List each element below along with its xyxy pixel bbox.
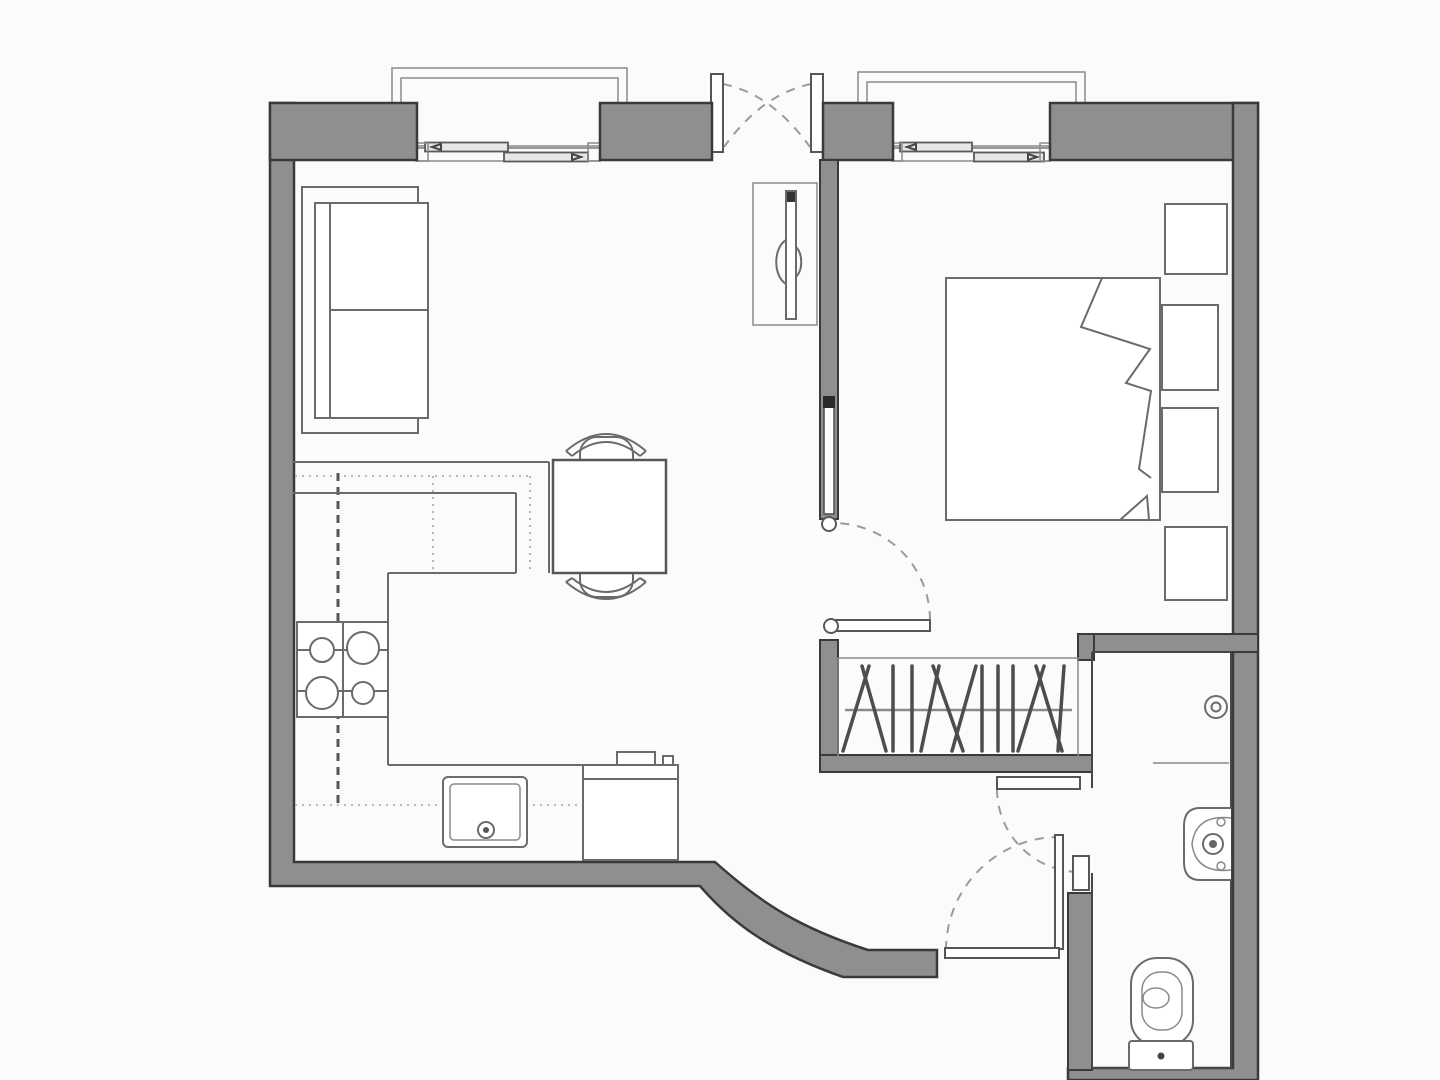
- washer-top-tab: [617, 752, 655, 766]
- entry-double-door: [711, 74, 823, 152]
- door-hinge-cap: [824, 619, 838, 633]
- wall-bathroom-left-lower: [1068, 893, 1092, 1070]
- toilet: [1129, 958, 1193, 1070]
- wall-top-left: [270, 103, 417, 160]
- lobby-door-swing-arc: [946, 837, 1059, 950]
- nightstand-top: [1165, 204, 1227, 274]
- kitchen: [293, 434, 678, 860]
- wall-top-mid: [600, 103, 712, 160]
- double-bed: [946, 278, 1160, 520]
- door-swing-arc: [724, 84, 811, 147]
- hanger-icon: [862, 666, 886, 751]
- toilet-bowl: [1131, 958, 1193, 1046]
- wall-bathroom-top: [1078, 634, 1258, 652]
- cabinet-mirror-bar: [786, 191, 796, 319]
- clothes-hangers: [843, 666, 1064, 751]
- living-room: [302, 187, 428, 433]
- shelf-upper: [1162, 305, 1218, 390]
- window-pane: [504, 153, 588, 162]
- bedroom-door-swing-arc: [833, 523, 930, 620]
- burner-icon: [306, 677, 338, 709]
- door-jamb: [1073, 856, 1089, 890]
- hanger-icon: [952, 666, 976, 751]
- kitchen-sink: [443, 777, 527, 847]
- wall-top-right: [1050, 103, 1258, 160]
- door-hinge-cap: [822, 517, 836, 531]
- nightstand-bottom: [1165, 527, 1227, 600]
- wash-basin: [1184, 808, 1231, 880]
- cabinet-handle: [776, 240, 786, 284]
- hall-cabinet: [753, 183, 817, 325]
- wardrobe-closet: [838, 658, 1078, 757]
- cabinet-bar-cap: [787, 192, 795, 202]
- living-room-balcony-outline: [392, 68, 627, 148]
- window-pane: [974, 153, 1044, 162]
- bathroom-door-leaf: [997, 777, 1080, 789]
- hanger-icon: [1058, 666, 1064, 751]
- burner-icon: [352, 682, 374, 704]
- pocket-door-stop: [823, 396, 835, 408]
- floor-plan-canvas: [0, 0, 1440, 1080]
- washing-machine: [583, 752, 678, 860]
- wall-top-hall: [823, 103, 893, 160]
- bedroom-window: [892, 143, 1050, 162]
- burner-icon: [310, 638, 334, 662]
- pocket-door-slot: [824, 398, 834, 514]
- stove-4-burner: [297, 622, 388, 717]
- burner-icon: [347, 632, 379, 664]
- toilet-flush-button: [1158, 1053, 1165, 1060]
- door-swing-arc: [723, 84, 810, 147]
- window-pane: [425, 143, 508, 152]
- downlight: [1205, 696, 1227, 718]
- wall-closet-left: [820, 640, 838, 772]
- window-pane: [900, 143, 972, 152]
- bedroom-door-leaf: [835, 620, 930, 631]
- floor-plan-page: [0, 0, 1440, 1080]
- shelf-lower: [1162, 408, 1218, 492]
- wall-right-and-bathroom-bottom: [1068, 103, 1258, 1080]
- hanger-icon: [933, 666, 963, 751]
- bathroom: [1092, 652, 1231, 1070]
- living-room-window: [416, 143, 600, 162]
- lobby-door-threshold: [945, 948, 1059, 958]
- dining-table: [553, 460, 666, 573]
- lobby-door-leaf: [1055, 835, 1063, 949]
- bedroom: [824, 204, 1227, 633]
- door-leaf: [811, 74, 823, 152]
- bathroom-door-swing-arc: [997, 789, 1080, 872]
